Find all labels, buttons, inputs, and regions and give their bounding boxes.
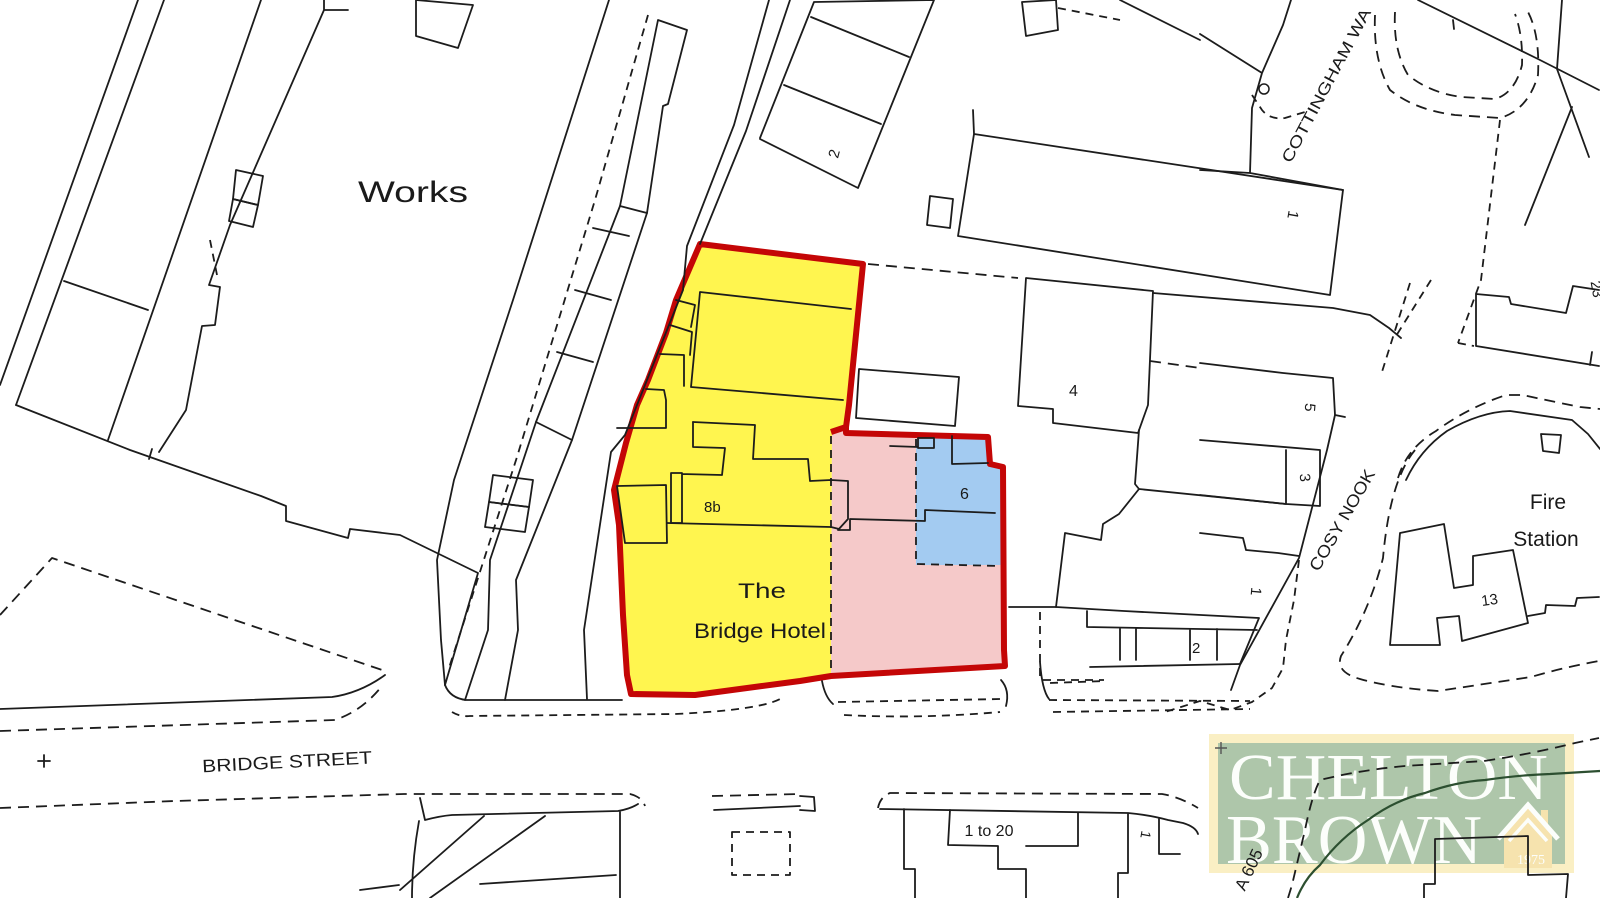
svg-text:BROWN: BROWN [1226, 802, 1482, 879]
svg-text:4: 4 [1069, 383, 1078, 400]
svg-text:1 to 20: 1 to 20 [965, 823, 1014, 840]
svg-text:The: The [738, 580, 786, 603]
svg-text:Works: Works [358, 176, 468, 209]
svg-text:13: 13 [1480, 591, 1499, 610]
svg-text:Bridge Hotel: Bridge Hotel [694, 620, 826, 643]
svg-text:3: 3 [1296, 473, 1314, 483]
svg-text:6: 6 [960, 486, 969, 503]
svg-text:1975: 1975 [1517, 853, 1545, 868]
svg-text:2: 2 [1192, 640, 1200, 657]
svg-text:5: 5 [1301, 402, 1319, 412]
svg-text:1: 1 [1247, 586, 1265, 596]
svg-text:Fire: Fire [1530, 491, 1566, 514]
svg-text:8b: 8b [704, 499, 721, 516]
svg-text:Station: Station [1513, 528, 1578, 551]
